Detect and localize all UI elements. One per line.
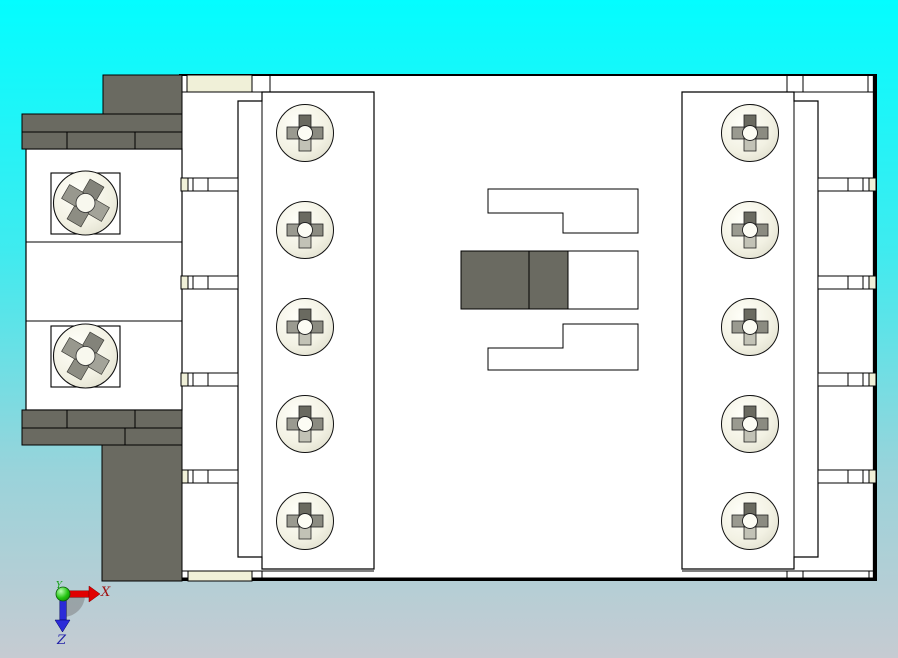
terminal-tab-cream-cell[interactable] <box>181 373 188 386</box>
terminal-screw[interactable] <box>277 202 334 259</box>
right-terminal-tab[interactable] <box>818 276 876 289</box>
terminal-screw[interactable] <box>277 396 334 453</box>
top-edge-tab-cream[interactable] <box>187 75 252 92</box>
part-top-view[interactable] <box>22 75 876 581</box>
bottom-edge-tab-cream[interactable] <box>188 571 252 581</box>
terminal-screw[interactable] <box>722 493 779 550</box>
terminal-tab-cream-cell[interactable] <box>869 470 876 483</box>
terminal-screw[interactable] <box>722 396 779 453</box>
terminal-screw[interactable] <box>722 202 779 259</box>
terminal-tab-cream-cell[interactable] <box>869 178 876 191</box>
terminal-screw[interactable] <box>277 105 334 162</box>
x-axis-label: X <box>100 585 111 600</box>
left-terminal-tab[interactable] <box>181 276 238 289</box>
bottom-mounting-rail[interactable] <box>22 410 182 428</box>
terminal-screw[interactable] <box>722 105 779 162</box>
top-mounting-rail[interactable] <box>22 132 182 149</box>
cad-viewport[interactable]: Y X Z <box>0 0 898 658</box>
left-terminal-tab[interactable] <box>181 470 238 483</box>
right-terminal-tab[interactable] <box>818 178 876 191</box>
terminal-tab-cream-cell[interactable] <box>181 276 188 289</box>
right-terminal-tab[interactable] <box>818 470 876 483</box>
right-terminal-tab[interactable] <box>818 373 876 386</box>
terminal-screw[interactable] <box>277 299 334 356</box>
terminal-screw[interactable] <box>722 299 779 356</box>
top-mounting-block[interactable] <box>103 75 182 114</box>
y-axis-label: Y <box>56 581 63 591</box>
terminal-tab-cream-cell[interactable] <box>869 276 876 289</box>
bottom-mounting-bar[interactable] <box>22 428 182 445</box>
left-terminal-tab[interactable] <box>181 178 238 191</box>
terminal-tab-cream-cell[interactable] <box>869 373 876 386</box>
top-mounting-bar[interactable] <box>22 114 182 132</box>
terminal-screw[interactable] <box>277 493 334 550</box>
slider-dark-block[interactable] <box>461 251 568 309</box>
left-terminal-tab[interactable] <box>181 373 238 386</box>
z-axis-label: Z <box>56 633 67 648</box>
terminal-tab-cream-cell[interactable] <box>181 178 188 191</box>
bottom-mounting-block[interactable] <box>102 445 182 581</box>
